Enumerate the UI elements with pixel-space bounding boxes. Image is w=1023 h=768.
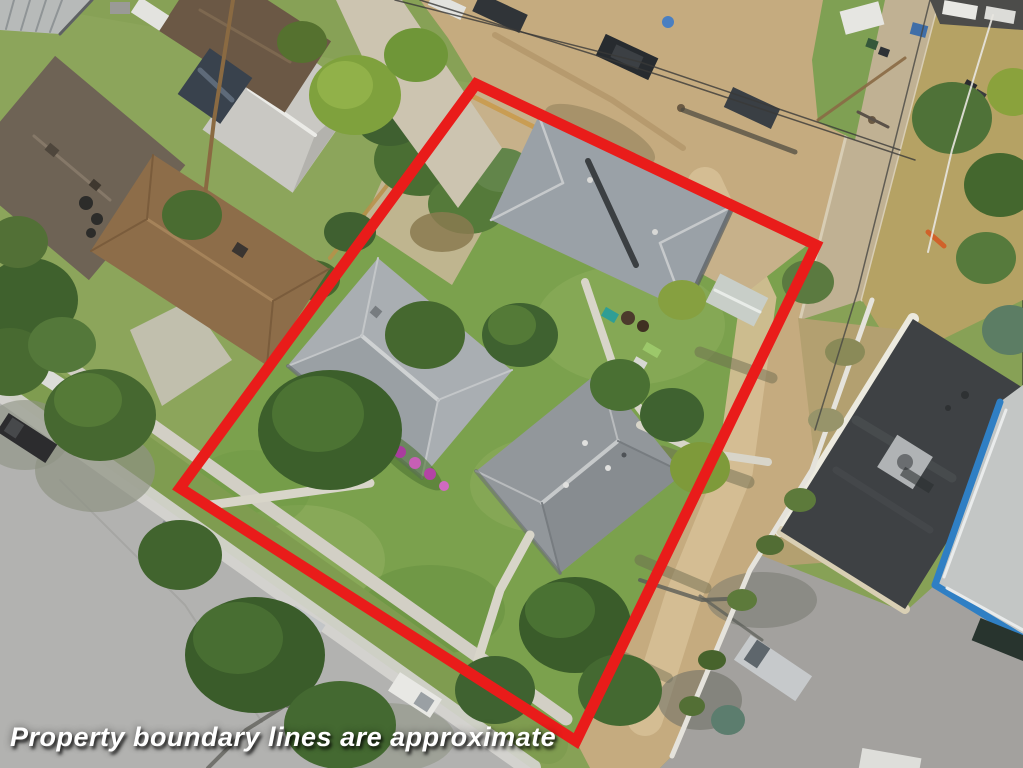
satellite-dish [86,228,96,238]
spruce-blue [711,705,745,735]
tree-canopy-light [488,305,536,345]
tree-canopy [385,301,465,369]
tree-canopy-yellow [384,28,448,82]
patio-item [637,320,649,332]
roof-vent [582,440,588,446]
dry-brush [808,408,844,432]
flowers-magenta [439,481,449,491]
tree-canopy-light [54,373,122,427]
satellite-dish [91,213,103,225]
tree-canopy [590,359,650,411]
aerial-property-photo: Property boundary lines are approximate [0,0,1023,768]
tree-canopy [138,520,222,590]
tree-canopy [912,82,992,154]
garden-dirt [410,212,474,252]
roof-vent [945,405,951,411]
roof-vent [605,465,611,471]
roof-vent [961,391,969,399]
flowers-magenta [409,457,421,469]
tree-canopy [277,21,327,63]
shed-gray [110,2,130,14]
tree-canopy [162,190,222,240]
dry-brush [825,338,865,366]
aerial-scene [0,0,1023,768]
satellite-dish [79,196,93,210]
flowers-magenta [424,468,436,480]
shrub [698,650,726,670]
shrub [679,696,705,716]
blue-tarp [662,16,674,28]
tree-canopy-light [272,376,364,452]
shrub [784,488,816,512]
tree-canopy [640,388,704,442]
roof-vent [587,177,593,183]
roof-vent [652,229,658,235]
tree-canopy [28,317,96,373]
shrub [727,589,757,611]
roof-vent [622,453,627,458]
boundary-disclaimer-caption: Property boundary lines are approximate [10,722,556,753]
fire-pit [621,311,635,325]
tree-canopy-light [193,602,283,674]
tree-canopy-yellow [658,280,706,320]
tree-canopy [956,232,1016,284]
shrub [756,535,784,555]
roof-vent [563,482,569,488]
tree-canopy-light [525,582,595,638]
tree-canopy-light [317,61,373,109]
